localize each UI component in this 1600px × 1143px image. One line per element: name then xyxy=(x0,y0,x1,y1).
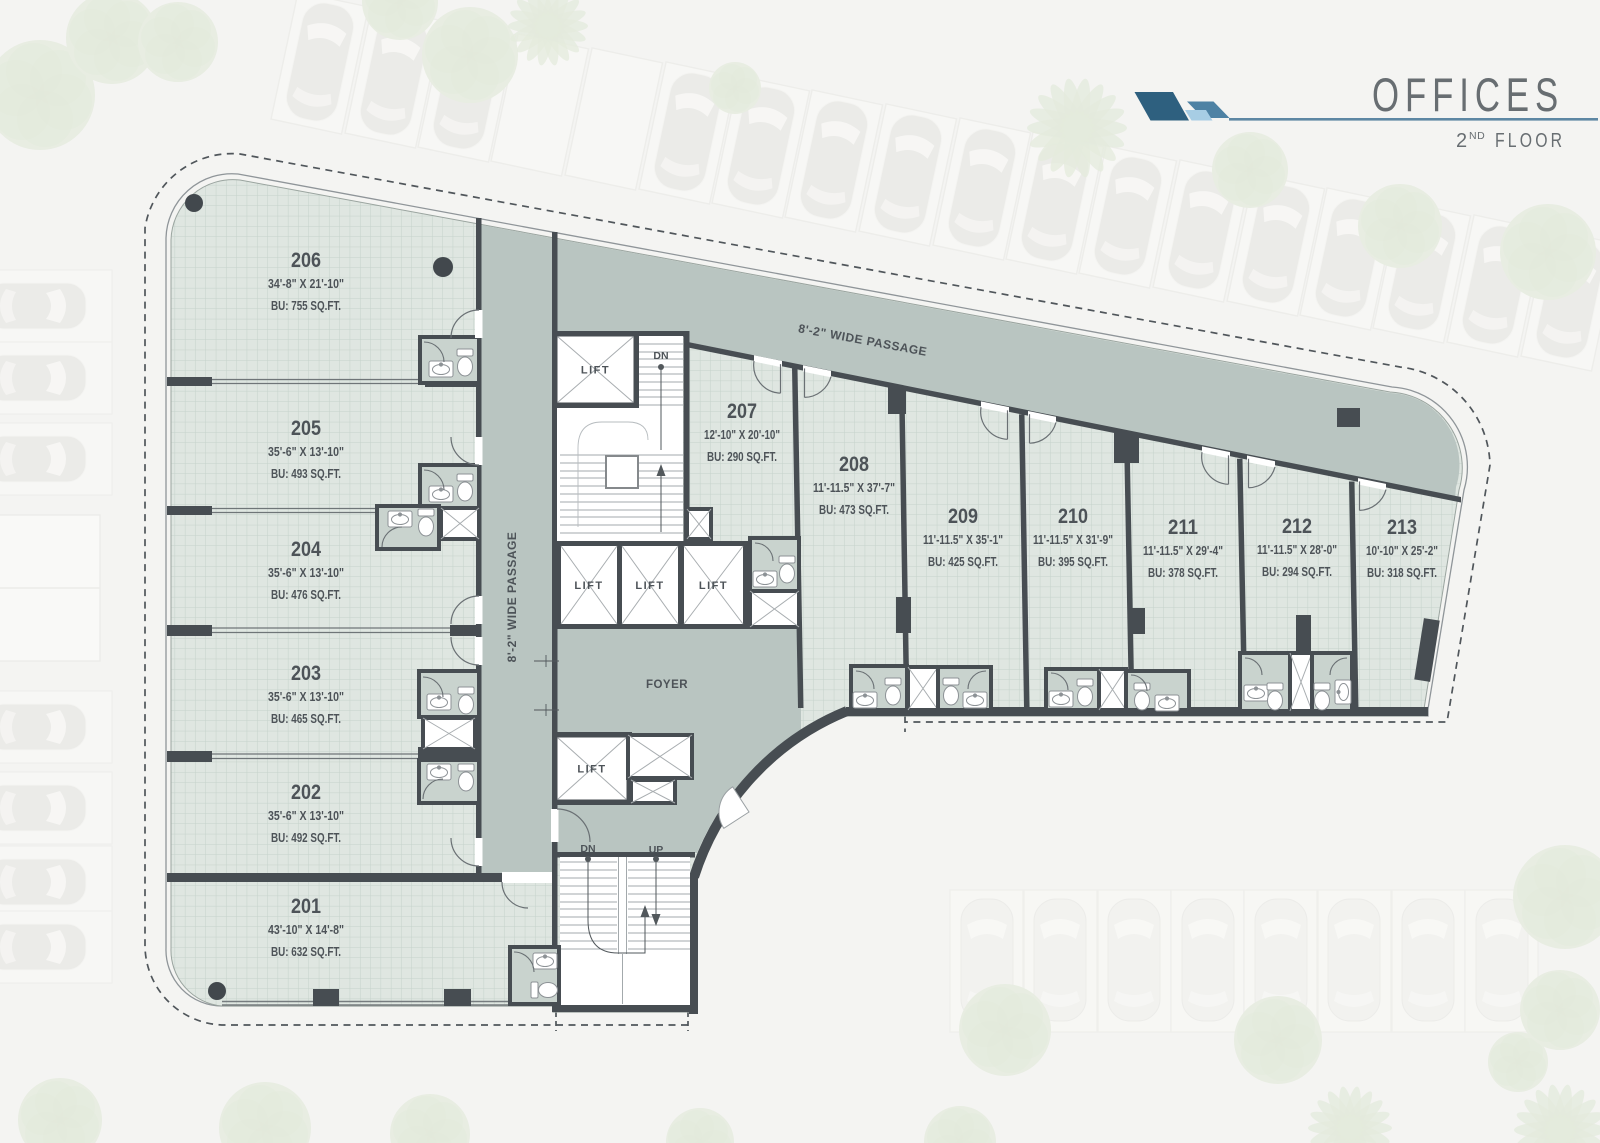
svg-text:203: 203 xyxy=(291,662,321,685)
svg-text:BU: 632 SQ.FT.: BU: 632 SQ.FT. xyxy=(271,945,341,959)
svg-text:DN: DN xyxy=(653,350,668,362)
svg-text:LIFT: LIFT xyxy=(574,580,603,592)
svg-text:FLOOR: FLOOR xyxy=(1495,129,1565,151)
svg-text:LIFT: LIFT xyxy=(699,580,728,592)
svg-text:10'-10" X 25'-2": 10'-10" X 25'-2" xyxy=(1366,544,1438,558)
svg-text:8'-2" WIDE PASSAGE: 8'-2" WIDE PASSAGE xyxy=(505,532,519,663)
svg-text:205: 205 xyxy=(291,417,321,440)
svg-text:BU: 493 SQ.FT.: BU: 493 SQ.FT. xyxy=(271,467,341,481)
svg-text:212: 212 xyxy=(1282,515,1312,538)
svg-text:BU: 425 SQ.FT.: BU: 425 SQ.FT. xyxy=(928,555,998,569)
svg-text:FOYER: FOYER xyxy=(646,679,688,691)
svg-text:213: 213 xyxy=(1387,516,1417,539)
svg-text:BU: 473 SQ.FT.: BU: 473 SQ.FT. xyxy=(819,503,889,517)
svg-text:211: 211 xyxy=(1168,516,1198,539)
svg-text:35'-6" X 13'-10": 35'-6" X 13'-10" xyxy=(268,445,344,459)
svg-text:209: 209 xyxy=(948,505,978,528)
svg-text:LIFT: LIFT xyxy=(635,580,664,592)
svg-text:2: 2 xyxy=(1456,130,1467,152)
svg-text:210: 210 xyxy=(1058,505,1088,528)
svg-text:UP: UP xyxy=(649,844,664,856)
svg-text:BU: 476 SQ.FT.: BU: 476 SQ.FT. xyxy=(271,588,341,602)
svg-text:34'-8" X 21'-10": 34'-8" X 21'-10" xyxy=(268,277,344,291)
svg-text:207: 207 xyxy=(727,400,757,423)
svg-text:35'-6" X 13'-10": 35'-6" X 13'-10" xyxy=(268,690,344,704)
svg-text:35'-6" X 13'-10": 35'-6" X 13'-10" xyxy=(268,566,344,580)
svg-text:LIFT: LIFT xyxy=(581,364,610,376)
svg-text:206: 206 xyxy=(291,249,321,272)
svg-text:DN: DN xyxy=(580,843,595,855)
svg-text:11'-11.5" X 31'-9": 11'-11.5" X 31'-9" xyxy=(1033,533,1113,547)
svg-text:11'-11.5" X 35'-1": 11'-11.5" X 35'-1" xyxy=(923,533,1003,547)
svg-text:BU: 755 SQ.FT.: BU: 755 SQ.FT. xyxy=(271,299,341,313)
svg-text:11'-11.5" X 28'-0": 11'-11.5" X 28'-0" xyxy=(1257,543,1337,557)
svg-text:11'-11.5" X 37'-7": 11'-11.5" X 37'-7" xyxy=(813,481,895,495)
svg-text:BU: 318 SQ.FT.: BU: 318 SQ.FT. xyxy=(1367,566,1437,580)
svg-text:BU: 465 SQ.FT.: BU: 465 SQ.FT. xyxy=(271,712,341,726)
svg-text:208: 208 xyxy=(839,453,869,476)
svg-text:204: 204 xyxy=(291,538,321,561)
svg-text:BU: 492 SQ.FT.: BU: 492 SQ.FT. xyxy=(271,831,341,845)
svg-text:43'-10" X 14'-8": 43'-10" X 14'-8" xyxy=(268,923,344,937)
svg-text:202: 202 xyxy=(291,781,321,804)
svg-text:LIFT: LIFT xyxy=(577,763,606,775)
svg-text:35'-6" X 13'-10": 35'-6" X 13'-10" xyxy=(268,809,344,823)
svg-text:OFFICES: OFFICES xyxy=(1372,69,1564,121)
svg-text:201: 201 xyxy=(291,895,321,918)
svg-text:12'-10" X 20'-10": 12'-10" X 20'-10" xyxy=(704,428,780,442)
svg-text:BU: 395 SQ.FT.: BU: 395 SQ.FT. xyxy=(1038,555,1108,569)
svg-text:BU: 290 SQ.FT.: BU: 290 SQ.FT. xyxy=(707,450,777,464)
svg-text:ND: ND xyxy=(1469,130,1485,142)
svg-text:11'-11.5" X 29'-4": 11'-11.5" X 29'-4" xyxy=(1143,544,1223,558)
svg-text:BU: 378 SQ.FT.: BU: 378 SQ.FT. xyxy=(1148,566,1218,580)
svg-text:BU: 294 SQ.FT.: BU: 294 SQ.FT. xyxy=(1262,565,1332,579)
